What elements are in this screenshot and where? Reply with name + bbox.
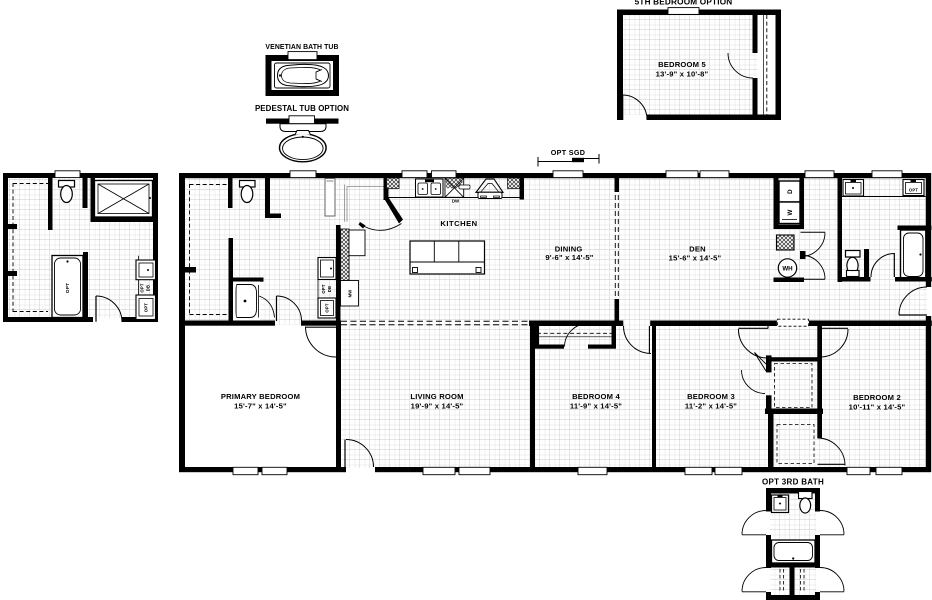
svg-text:BEDROOM 5: BEDROOM 5 — [658, 60, 706, 69]
svg-text:5TH BEDROOM OPTION: 5TH BEDROOM OPTION — [635, 0, 733, 7]
svg-text:DEN: DEN — [689, 245, 706, 254]
svg-text:LIVING ROOM: LIVING ROOM — [410, 392, 463, 401]
svg-text:MW: MW — [348, 290, 353, 298]
svg-text:13'-9" x 10'-8": 13'-9" x 10'-8" — [656, 70, 709, 79]
svg-text:OPT: OPT — [325, 303, 330, 312]
svg-text:W: W — [787, 209, 794, 215]
svg-text:OPT: OPT — [144, 303, 149, 312]
svg-text:OPT 3RD BATH: OPT 3RD BATH — [762, 478, 824, 487]
svg-text:BEDROOM 3: BEDROOM 3 — [687, 392, 735, 401]
svg-text:9'-6" x 14'-5": 9'-6" x 14'-5" — [545, 253, 593, 262]
svg-text:WH: WH — [782, 266, 793, 273]
svg-text:OPT: OPT — [909, 188, 918, 193]
svg-text:11'-2" x 14'-5": 11'-2" x 14'-5" — [685, 402, 737, 411]
svg-text:DW: DW — [452, 198, 460, 203]
svg-text:15'-6" x 14'-5": 15'-6" x 14'-5" — [669, 254, 722, 263]
svg-text:11'-9" x 14'-5": 11'-9" x 14'-5" — [570, 402, 622, 411]
svg-text:19'-9" x 14'-5": 19'-9" x 14'-5" — [411, 402, 464, 411]
svg-text:VENETIAN BATH TUB: VENETIAN BATH TUB — [265, 44, 338, 51]
svg-text:OPT: OPT — [321, 284, 326, 293]
svg-text:DB: DB — [327, 286, 332, 292]
svg-text:D: D — [787, 189, 794, 194]
svg-text:PEDESTAL TUB OPTION: PEDESTAL TUB OPTION — [255, 104, 349, 113]
svg-text:OPT: OPT — [140, 283, 145, 292]
svg-text:BEDROOM 4: BEDROOM 4 — [572, 392, 620, 401]
svg-text:KITCHEN: KITCHEN — [440, 219, 477, 228]
svg-text:BEDROOM 2: BEDROOM 2 — [853, 393, 901, 402]
svg-text:OPT SGD: OPT SGD — [551, 148, 585, 157]
svg-text:OPT: OPT — [65, 283, 71, 293]
svg-text:10'-11" x 14'-5": 10'-11" x 14'-5" — [849, 403, 906, 412]
svg-text:DB: DB — [146, 285, 151, 291]
svg-text:PRIMARY BEDROOM: PRIMARY BEDROOM — [221, 392, 300, 401]
svg-text:15'-7" x 14'-5": 15'-7" x 14'-5" — [234, 402, 287, 411]
